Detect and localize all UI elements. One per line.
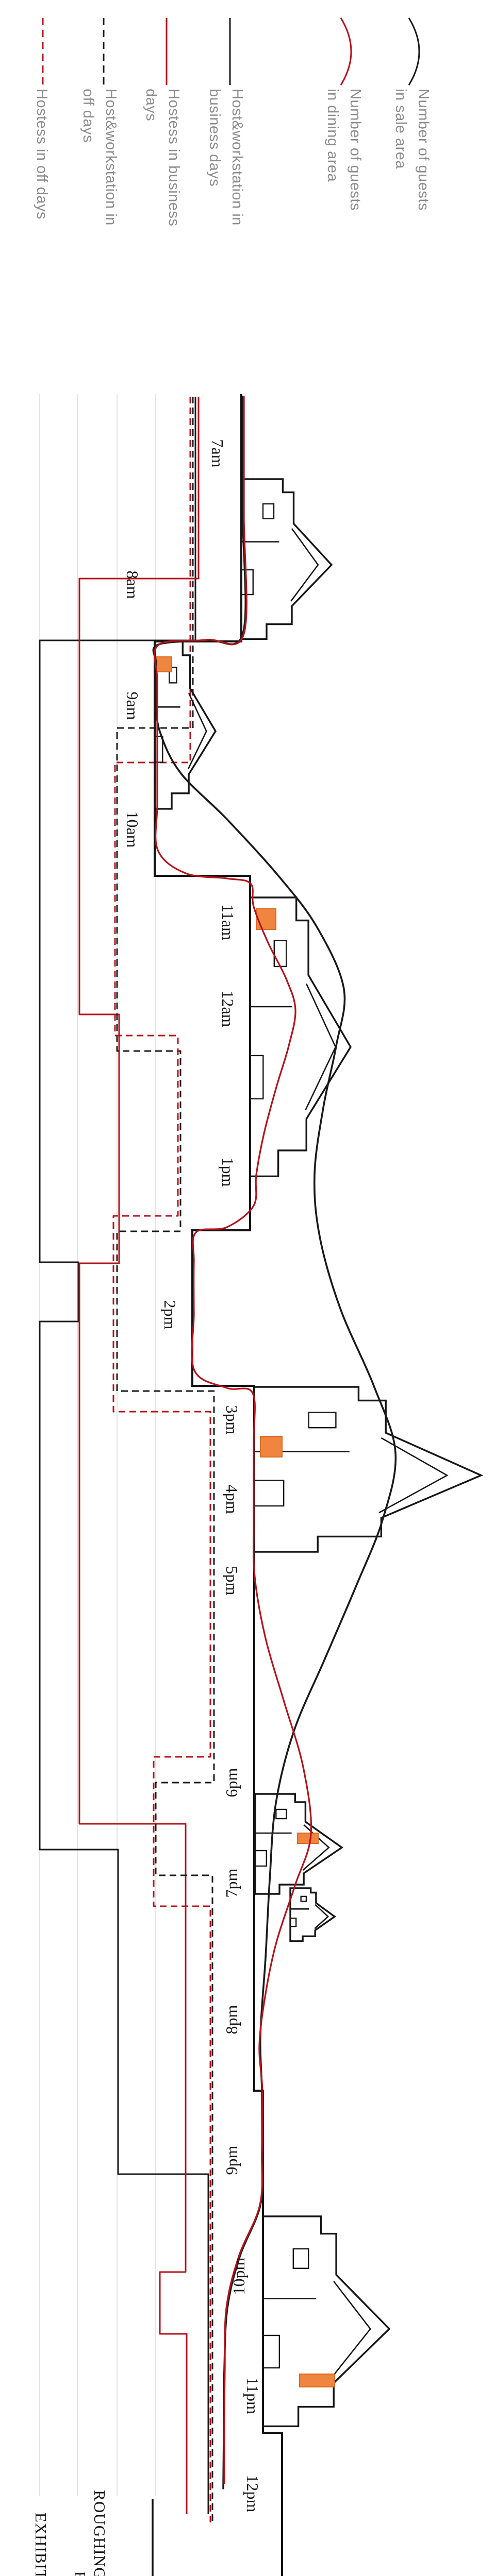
house-outline — [290, 1888, 335, 1941]
house-outline — [250, 897, 351, 1176]
house-outline — [263, 2216, 389, 2426]
house-furniture-rect — [254, 1481, 284, 1506]
time-label-2pm: 2pm — [160, 1300, 179, 1330]
time-label-4pm: 4pm — [222, 1485, 241, 1514]
legend-sample-guests-dining — [341, 18, 351, 85]
legend-label-host-business: Host&workstation inbusiness days — [203, 89, 249, 226]
house-9am — [155, 641, 216, 809]
host-location-highlight — [256, 909, 276, 929]
legend-label-line: Hostess in off days — [30, 89, 53, 219]
house-window-rect — [301, 1896, 306, 1902]
legend-label-host-off: Host&workstation inoff days — [77, 89, 122, 226]
legend-label-line: Host&workstation in — [226, 89, 249, 226]
house-window-rect — [263, 504, 274, 519]
legend-label-line: Hostess in business — [162, 89, 185, 226]
host-location-highlight — [260, 1436, 282, 1457]
time-label-3pm: 3pm — [222, 1405, 241, 1435]
house-3pm — [254, 1387, 481, 1552]
house-outline — [241, 479, 332, 639]
legend-label-line: Host&workstation in — [100, 89, 122, 226]
house-window-rect — [309, 1413, 336, 1428]
time-label-9pm: 9pm — [222, 2146, 241, 2175]
time-label-12pm: 12pm — [243, 2475, 262, 2513]
time-label-8am: 8am — [123, 570, 142, 599]
time-label-7pm: 7pm — [222, 1869, 241, 1898]
legend-sample-guests-sale — [409, 18, 419, 85]
host-location-highlight — [300, 2374, 335, 2387]
house-730pm — [290, 1888, 335, 1941]
time-label-10pm: 10pm — [229, 2258, 249, 2295]
houses-group — [155, 479, 481, 2426]
house-11am — [250, 897, 351, 1176]
legend-samples-group — [43, 18, 419, 85]
house-6pm — [255, 1794, 342, 1894]
legend-label-line: in sale area — [389, 89, 412, 211]
time-label-7am: 7am — [208, 439, 227, 467]
legend-label-line: Number of guests — [412, 89, 435, 211]
house-inner-roof — [333, 2281, 371, 2377]
legend-label-line: in dining area — [321, 89, 344, 211]
time-label-6pm: 6pm — [222, 1768, 241, 1798]
time-label-11pm: 11pm — [243, 2377, 262, 2414]
legend-label-hostess-off: Hostess in off days — [30, 89, 53, 219]
diagram-viewport: Number of guestsin sale areaNumber of gu… — [0, 0, 495, 2576]
house-window-rect — [274, 941, 286, 967]
host-location-highlight — [156, 657, 172, 672]
room-label-roughing-storing: ROUGHING & STORING — [90, 2490, 109, 2576]
time-label-12am: 12am — [218, 990, 237, 1027]
house-10pm — [263, 2216, 389, 2426]
house-furniture-rect — [250, 1056, 263, 1099]
house-inner-roof — [303, 1825, 328, 1870]
legend-label-guests-sale: Number of guestsin sale area — [389, 89, 435, 211]
legend-label-line: business days — [203, 89, 226, 226]
time-label-1pm: 1pm — [218, 1158, 237, 1187]
diagram-canvas — [0, 0, 495, 2576]
legend-label-hostess-business: Hostess in businessdays — [140, 89, 185, 226]
legend-label-line: off days — [77, 89, 100, 226]
legend-label-line: Number of guests — [344, 89, 367, 211]
house-window-rect — [276, 1809, 286, 1819]
house-furniture-rect — [263, 2335, 279, 2368]
house-inner-roof — [379, 1438, 447, 1513]
time-label-9am: 9am — [123, 691, 142, 720]
diagram-stage: Number of guestsin sale areaNumber of gu… — [0, 0, 495, 2576]
house-window-rect — [293, 2249, 308, 2268]
house-inner-roof — [305, 984, 336, 1110]
host-location-highlight — [298, 1833, 318, 1843]
time-label-8pm: 8pm — [222, 2005, 241, 2035]
house-inner-roof — [291, 529, 318, 601]
house-8am — [241, 479, 332, 639]
legend-label-line: days — [140, 89, 162, 226]
room-label-exhibition-sale: EXHIBITION & SALE — [31, 2513, 50, 2576]
time-label-10am: 10am — [123, 811, 142, 848]
legend-label-guests-dining: Number of guestsin dining area — [321, 89, 367, 211]
room-label-experience: EXPERIENCE — [71, 2571, 89, 2576]
time-label-5pm: 5pm — [222, 1566, 241, 1596]
house-outline — [254, 1387, 481, 1552]
house-furniture-rect — [255, 1851, 267, 1866]
time-label-11am: 11am — [218, 904, 237, 940]
